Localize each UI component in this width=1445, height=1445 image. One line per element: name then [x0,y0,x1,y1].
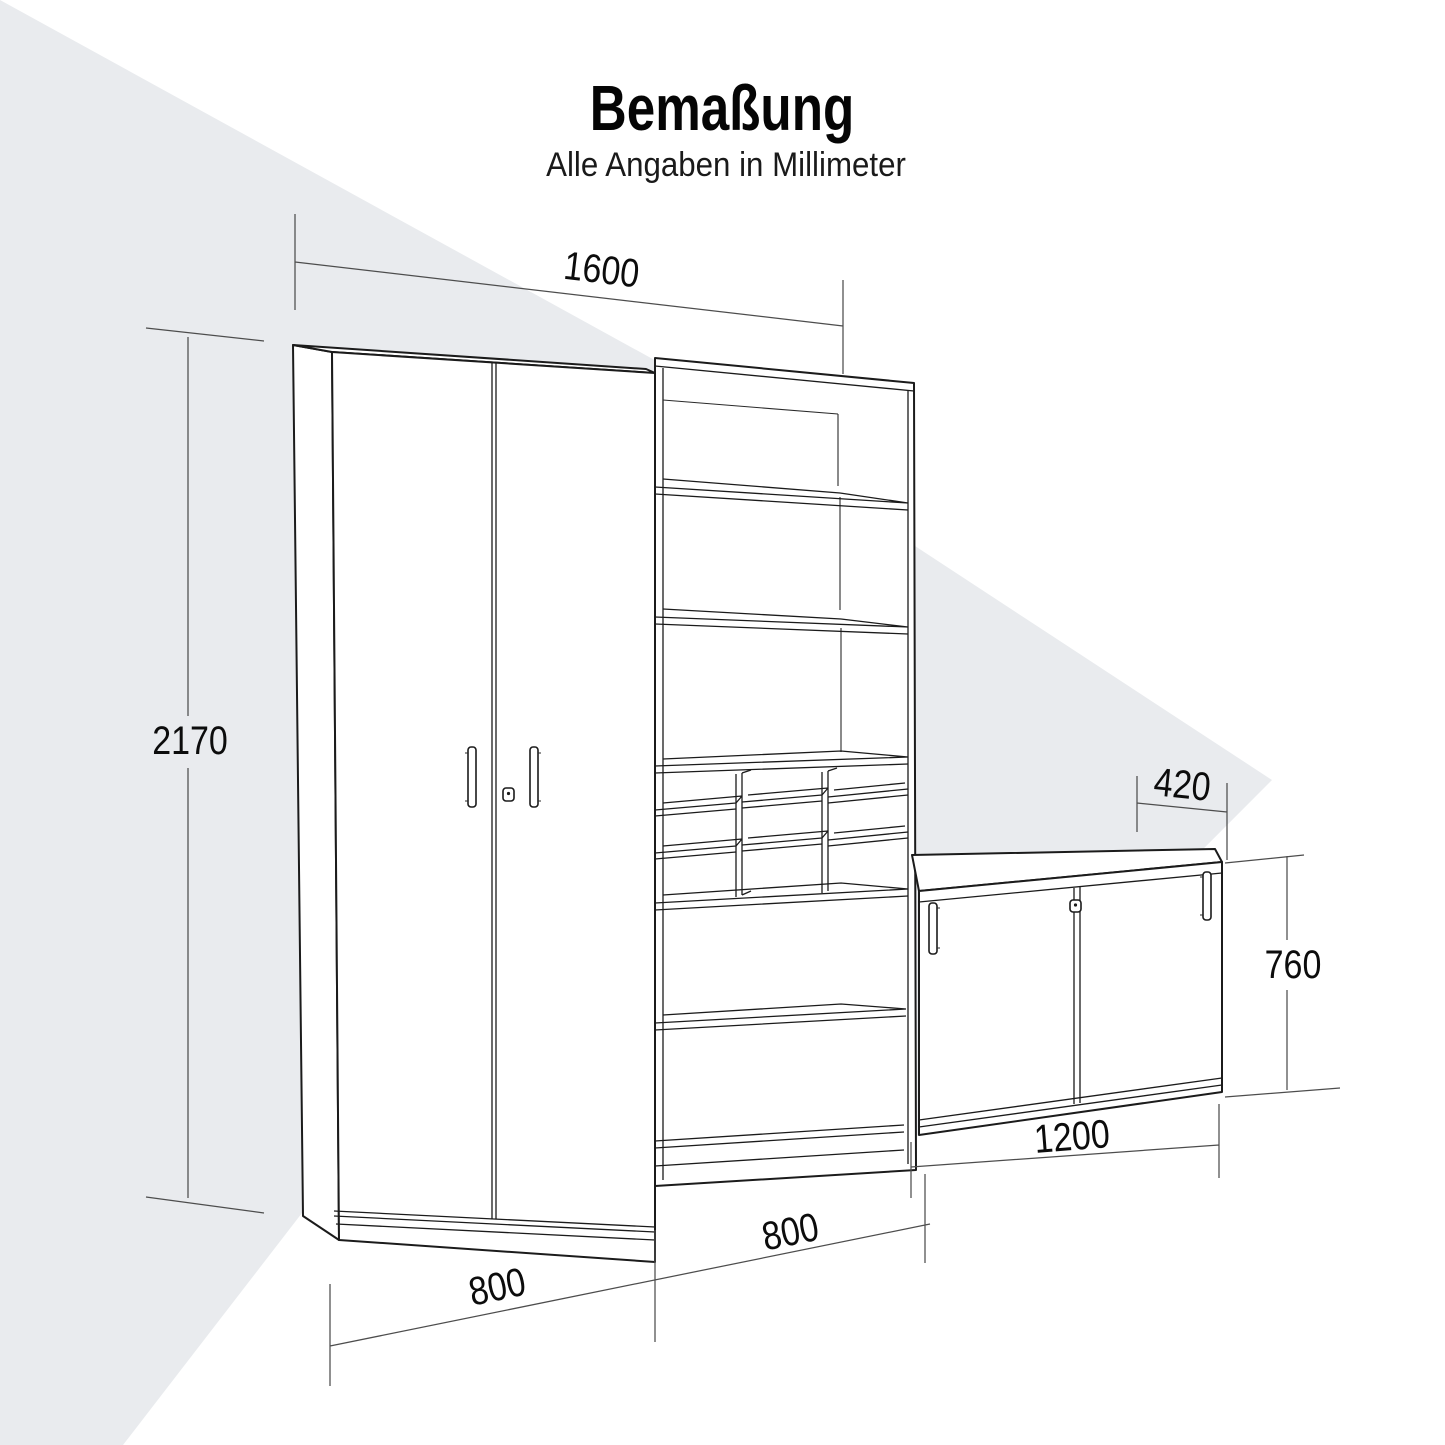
dim-label-sideboard-depth: 420 [1152,759,1213,810]
dim-label-shelf-unit-width: 800 [758,1203,823,1259]
dimension-diagram-page: 1600 2170 420 760 1200 800 800 Bemaßung … [0,0,1445,1445]
dim-label-sideboard-height: 760 [1265,941,1322,986]
shelf-unit [655,358,916,1186]
dim-label-total-height: 2170 [152,717,228,762]
furniture-dimension-drawing: 1600 2170 420 760 1200 800 800 Bemaßung … [0,0,1445,1445]
wardrobe-cabinet [293,345,655,1262]
sideboard [912,849,1222,1135]
dim-label-sideboard-width: 1200 [1032,1111,1111,1162]
page-subtitle: Alle Angaben in Millimeter [546,145,906,184]
header: Bemaßung Alle Angaben in Millimeter [546,74,906,184]
dim-label-total-width: 1600 [561,242,641,296]
page-title: Bemaßung [590,74,854,145]
cabinet-lock [503,788,514,801]
dim-label-cabinet-width: 800 [465,1258,530,1314]
cabinet-front-face [332,352,655,1262]
sideboard-lock [1070,900,1081,912]
